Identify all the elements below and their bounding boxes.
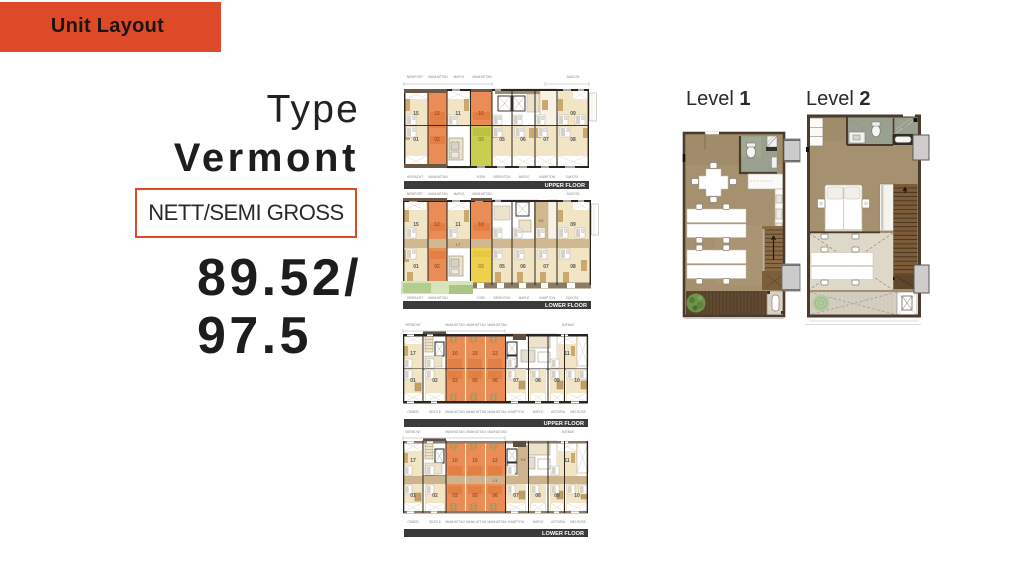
svg-text:9.9: 9.9: [521, 458, 526, 462]
svg-text:MAPLE: MAPLE: [519, 296, 530, 300]
svg-text:MANHATTAN: MANHATTAN: [487, 410, 507, 414]
svg-text:12: 12: [434, 222, 440, 228]
svg-text:05: 05: [472, 378, 478, 384]
svg-text:08: 08: [535, 493, 541, 499]
svg-text:11: 11: [564, 351, 570, 357]
svg-text:03: 03: [452, 378, 458, 384]
svg-text:MANHATTAN: MANHATTAN: [445, 430, 465, 434]
svg-text:BRIGHTON: BRIGHTON: [494, 296, 511, 300]
svg-text:SEATLE: SEATLE: [429, 520, 441, 524]
svg-text:MAPLE: MAPLE: [454, 75, 465, 79]
svg-text:MANHATTAN: MANHATTAN: [487, 323, 507, 327]
svg-text:09: 09: [554, 378, 560, 384]
svg-text:06: 06: [492, 493, 498, 499]
svg-text:VERMONT: VERMONT: [405, 430, 421, 434]
svg-text:15: 15: [472, 458, 478, 464]
svg-text:OSNER: OSNER: [407, 520, 419, 524]
svg-text:03: 03: [452, 493, 458, 499]
svg-text:VERMONT: VERMONT: [405, 323, 421, 327]
svg-text:02: 02: [432, 493, 438, 499]
svg-text:MELROSE: MELROSE: [570, 520, 586, 524]
svg-text:15: 15: [413, 111, 419, 117]
svg-text:08: 08: [535, 378, 541, 384]
svg-text:AVENUE: AVENUE: [562, 323, 575, 327]
svg-text:MAPLE: MAPLE: [519, 175, 530, 179]
svg-text:07: 07: [543, 264, 549, 270]
svg-text:07: 07: [513, 493, 519, 499]
svg-text:DAKOTA: DAKOTA: [566, 175, 580, 179]
svg-text:DAKOTA: DAKOTA: [566, 296, 580, 300]
svg-text:LOWER FLOOR: LOWER FLOOR: [545, 303, 587, 309]
svg-text:BRIGHTON: BRIGHTON: [494, 175, 511, 179]
svg-text:1.5: 1.5: [493, 479, 498, 483]
svg-text:11: 11: [564, 458, 570, 464]
svg-text:HEIRACHT: HEIRACHT: [407, 296, 423, 300]
svg-text:07: 07: [513, 378, 519, 384]
svg-text:17: 17: [410, 351, 416, 357]
svg-text:06: 06: [492, 378, 498, 384]
svg-text:MANHATTAN: MANHATTAN: [428, 75, 448, 79]
svg-text:HAMPTON: HAMPTON: [539, 296, 556, 300]
svg-text:12: 12: [492, 351, 498, 357]
svg-text:MANHATTAN: MANHATTAN: [487, 430, 507, 434]
svg-text:01: 01: [413, 264, 419, 270]
svg-text:HAMPTON: HAMPTON: [508, 410, 525, 414]
svg-text:10: 10: [574, 378, 580, 384]
svg-text:HEIRACHT: HEIRACHT: [407, 175, 423, 179]
svg-text:11: 11: [455, 111, 461, 117]
svg-text:NEWPORT: NEWPORT: [407, 75, 423, 79]
svg-text:MANHATTAN: MANHATTAN: [466, 323, 486, 327]
svg-text:02: 02: [432, 378, 438, 384]
svg-text:HAMPTON: HAMPTON: [539, 175, 556, 179]
svg-text:10: 10: [478, 111, 484, 117]
svg-text:MANHATTAN: MANHATTAN: [472, 75, 492, 79]
svg-text:AVENUE: AVENUE: [562, 430, 575, 434]
svg-text:09: 09: [570, 111, 576, 117]
svg-text:02: 02: [434, 264, 440, 270]
svg-text:MANH ATTAN: MANH ATTAN: [466, 410, 487, 414]
svg-text:MANHATTAN: MANHATTAN: [445, 410, 465, 414]
svg-text:03: 03: [478, 264, 484, 270]
svg-text:01: 01: [413, 137, 419, 143]
svg-text:07: 07: [543, 137, 549, 143]
svg-text:11: 11: [455, 222, 461, 228]
svg-text:12: 12: [492, 458, 498, 464]
svg-text:MANHATTAN: MANHATTAN: [487, 520, 507, 524]
svg-text:MANHATTAN: MANHATTAN: [428, 192, 448, 196]
svg-text:05: 05: [499, 264, 505, 270]
svg-text:NEWPORT: NEWPORT: [407, 192, 423, 196]
svg-text:02: 02: [434, 137, 440, 143]
svg-text:ASTORIA: ASTORIA: [551, 520, 566, 524]
svg-text:HAMPTON: HAMPTON: [508, 520, 525, 524]
svg-text:YORK: YORK: [476, 175, 486, 179]
svg-text:17: 17: [410, 458, 416, 464]
svg-text:01: 01: [410, 493, 416, 499]
svg-text:DAKOTA: DAKOTA: [567, 75, 581, 79]
svg-text:SEATLE: SEATLE: [429, 410, 441, 414]
svg-text:OSNER: OSNER: [407, 410, 419, 414]
svg-text:MAPLE: MAPLE: [454, 192, 465, 196]
svg-text:ASTORIA: ASTORIA: [551, 410, 566, 414]
svg-text:MAPLE: MAPLE: [533, 410, 544, 414]
svg-text:UPPER FLOOR: UPPER FLOOR: [545, 183, 585, 189]
svg-text:05: 05: [499, 137, 505, 143]
svg-text:03: 03: [478, 137, 484, 143]
svg-text:YORK: YORK: [476, 296, 486, 300]
svg-text:MANHATTAN: MANHATTAN: [445, 520, 465, 524]
svg-text:15: 15: [413, 222, 419, 228]
svg-text:08: 08: [570, 264, 576, 270]
svg-text:06: 06: [520, 264, 526, 270]
svg-text:MANHATTAN: MANHATTAN: [466, 430, 486, 434]
svg-text:08: 08: [570, 137, 576, 143]
svg-text:MANHATTAN: MANHATTAN: [428, 175, 448, 179]
svg-text:10: 10: [452, 351, 458, 357]
svg-text:MANHATTAN: MANHATTAN: [428, 296, 448, 300]
svg-text:06: 06: [520, 137, 526, 143]
svg-text:10: 10: [478, 222, 484, 228]
svg-text:09: 09: [570, 222, 576, 228]
svg-text:12: 12: [434, 111, 440, 117]
svg-text:LOWER FLOOR: LOWER FLOOR: [542, 531, 584, 537]
svg-text:1.7: 1.7: [456, 243, 461, 247]
svg-text:01: 01: [410, 378, 416, 384]
svg-text:MANHATTAN: MANHATTAN: [472, 192, 492, 196]
svg-text:05: 05: [472, 493, 478, 499]
svg-text:MANH ATTAN: MANH ATTAN: [466, 520, 487, 524]
svg-text:DAKOTA: DAKOTA: [567, 192, 581, 196]
svg-text:15: 15: [472, 351, 478, 357]
svg-text:UPPER FLOOR: UPPER FLOOR: [544, 421, 584, 427]
svg-text:10: 10: [574, 493, 580, 499]
svg-text:MAPLE: MAPLE: [533, 520, 544, 524]
svg-text:MANHATTAN: MANHATTAN: [445, 323, 465, 327]
svg-text:10: 10: [452, 458, 458, 464]
svg-text:09: 09: [554, 493, 560, 499]
svg-text:9.9: 9.9: [539, 219, 544, 223]
svg-text:MELROSE: MELROSE: [570, 410, 586, 414]
